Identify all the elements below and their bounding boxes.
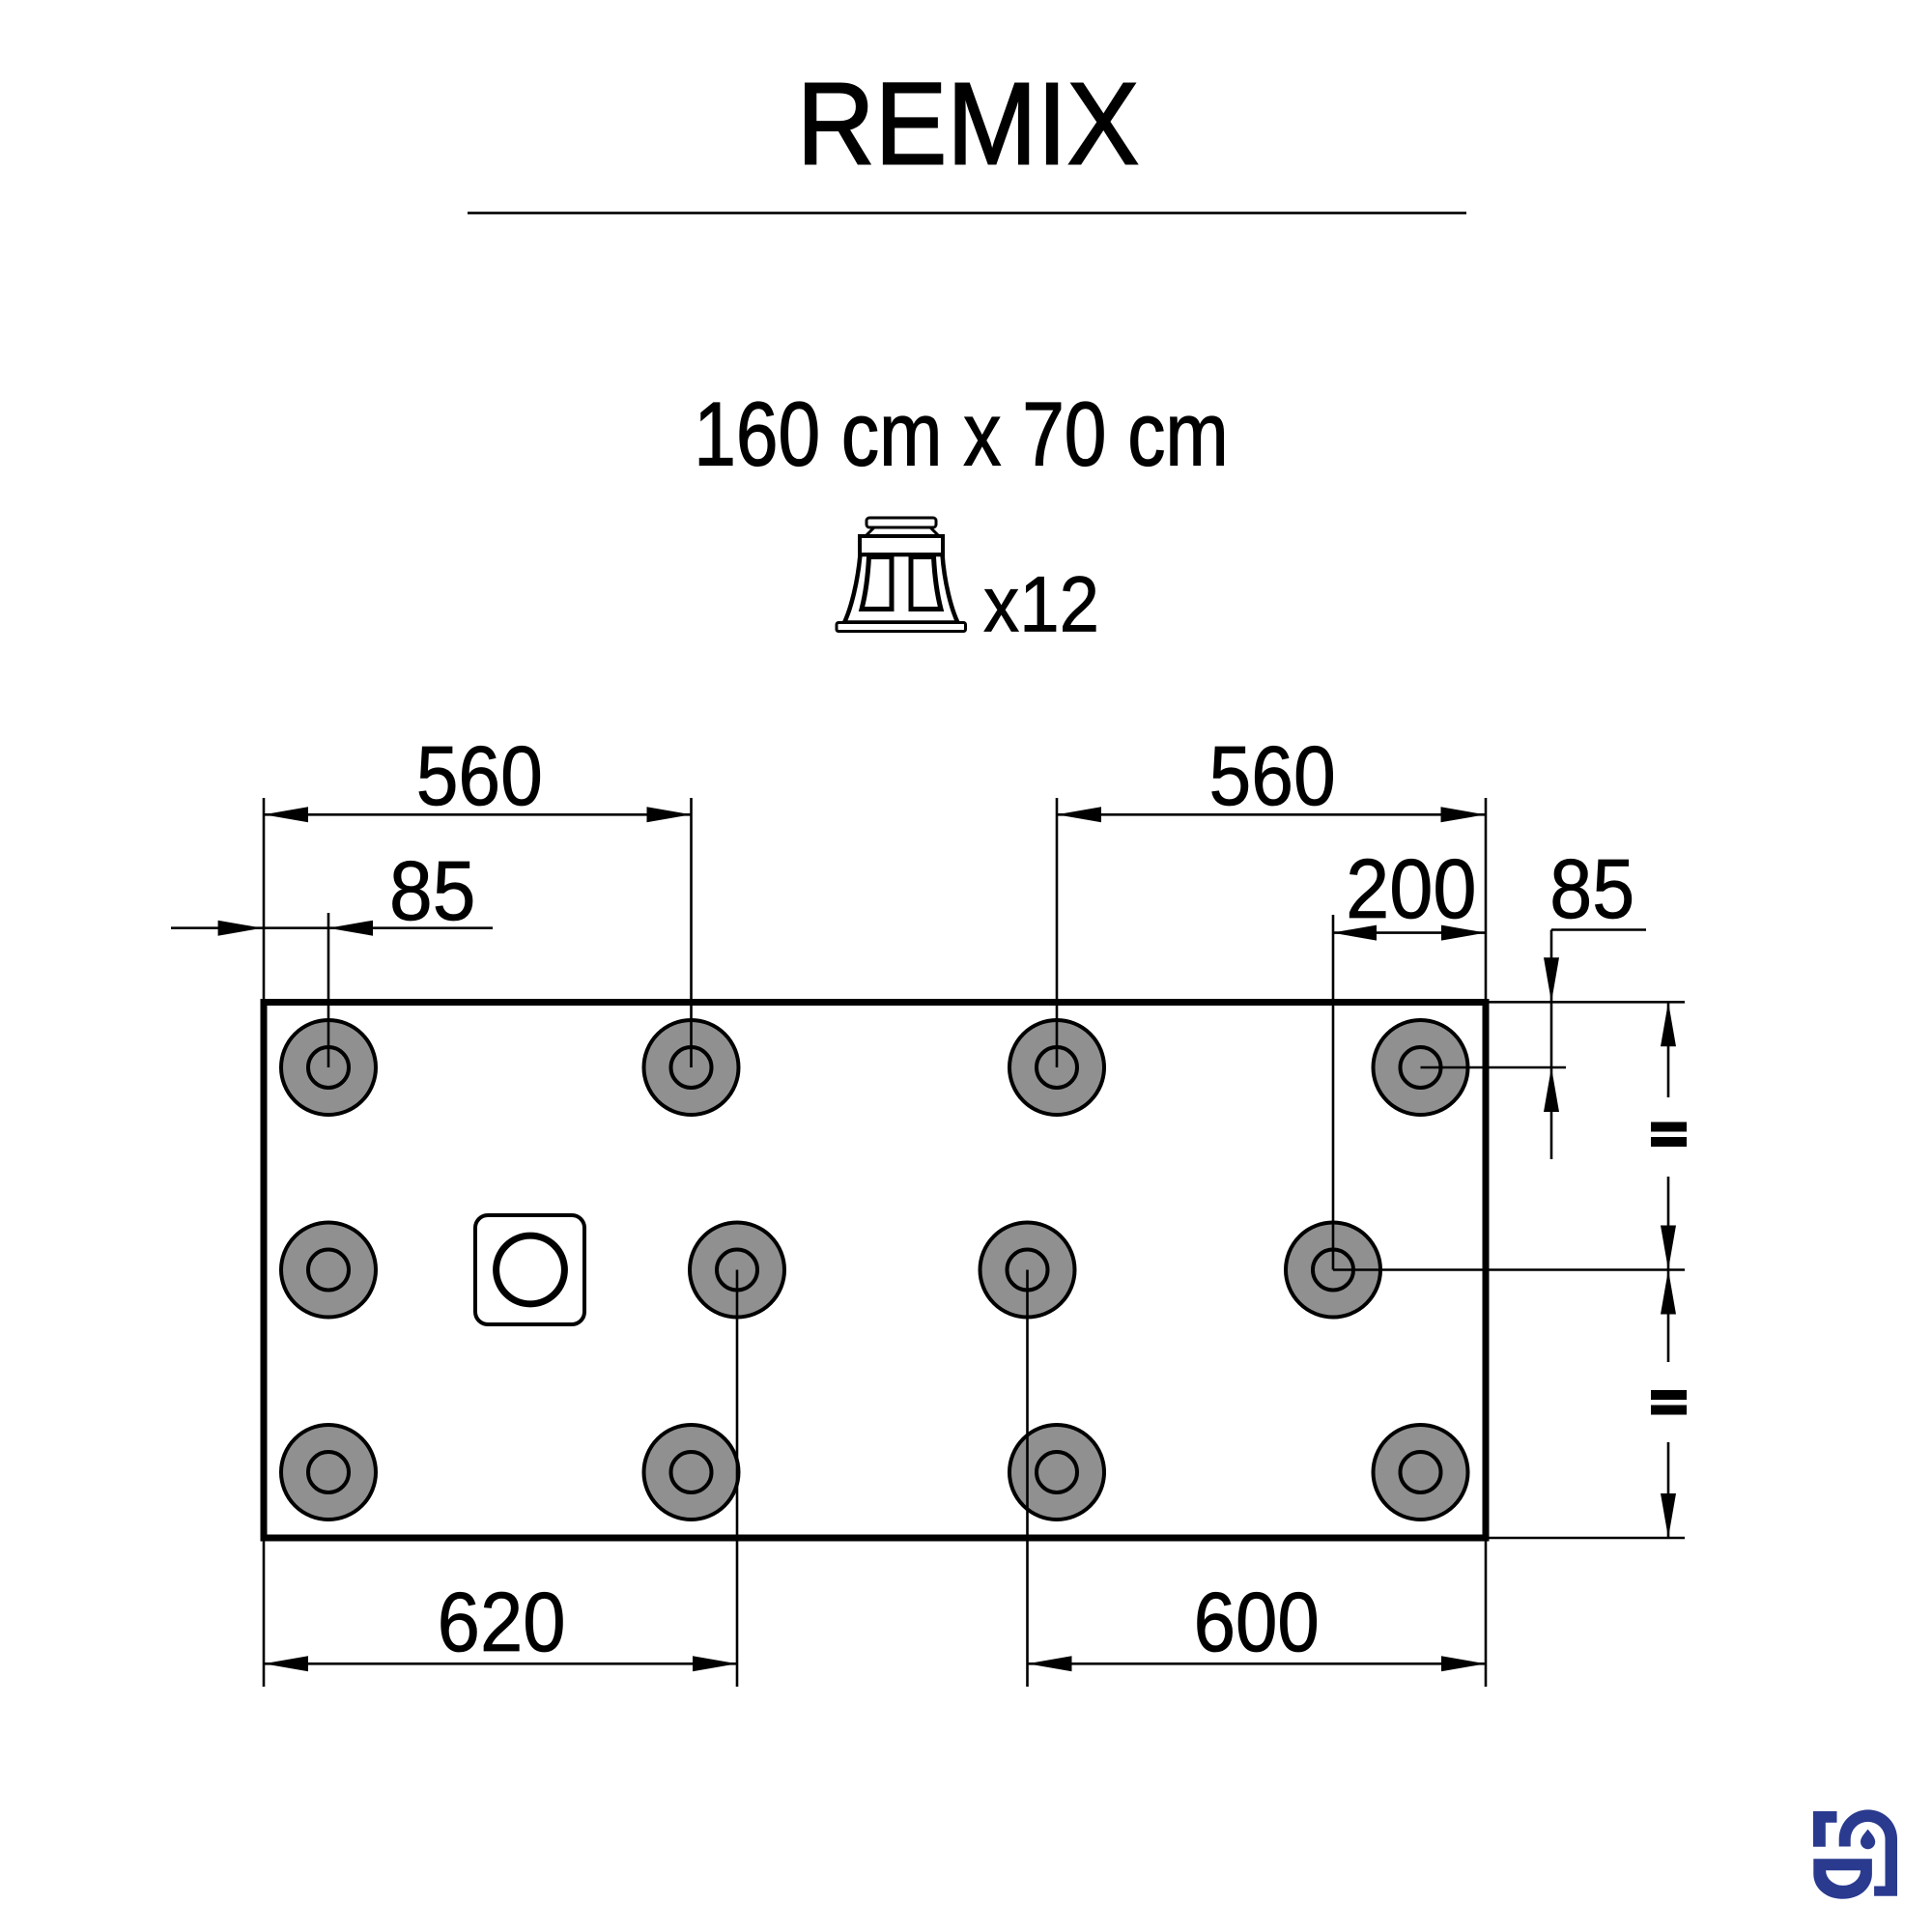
svg-text:x12: x12	[983, 561, 1099, 649]
svg-text:560: 560	[416, 728, 543, 823]
svg-text:560: 560	[1209, 728, 1336, 823]
svg-text:160 cm x 70 cm: 160 cm x 70 cm	[694, 383, 1229, 484]
svg-text:200: 200	[1346, 841, 1476, 936]
svg-text:85: 85	[1549, 841, 1634, 936]
svg-text:600: 600	[1194, 1575, 1320, 1669]
svg-text:85: 85	[389, 843, 475, 938]
svg-text:620: 620	[438, 1575, 566, 1669]
svg-text:REMIX: REMIX	[797, 58, 1140, 189]
